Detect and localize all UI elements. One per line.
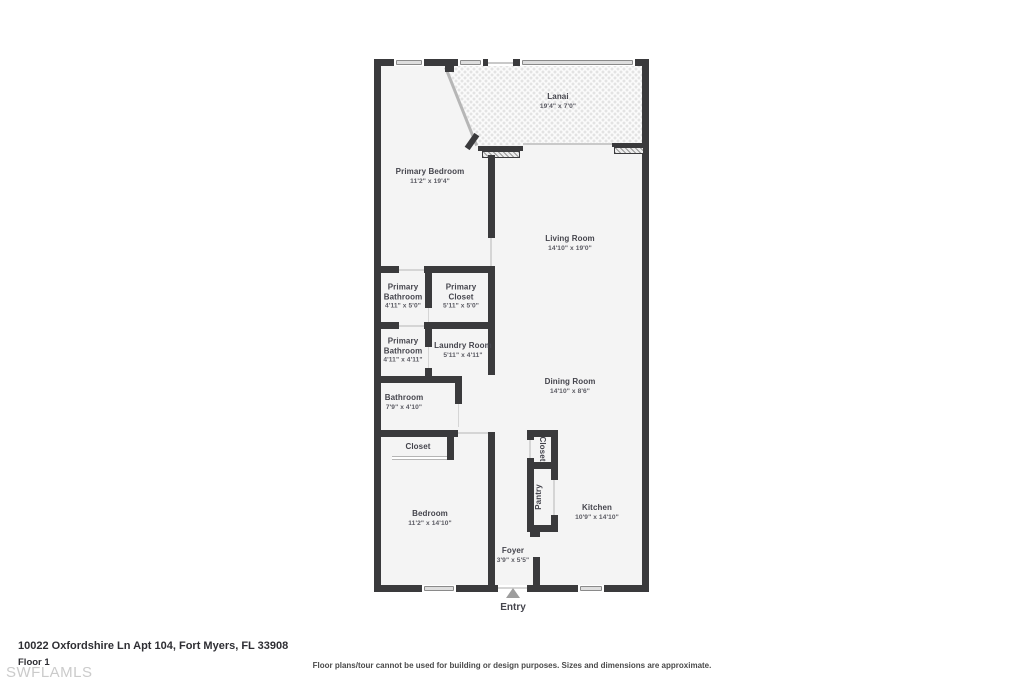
wall-primary-bath-top-2 [424,266,495,273]
disclaimer-text: Floor plans/tour cannot be used for buil… [0,661,1024,670]
room-dims: 14'10" x 19'0" [545,245,595,252]
window-lanai [520,59,635,66]
room-name: Laundry Room [434,341,492,351]
wall-hall-closet-right [447,430,454,460]
wall-bottom-1 [374,585,422,592]
room-name: Primary Closet [435,282,487,301]
room-name: Bedroom [408,509,451,519]
wall-bottom-3 [527,585,578,592]
room-label-living-room: Living Room 14'10" x 19'0" [545,234,595,252]
room-name: Primary Bathroom [377,336,429,355]
room-label-primary-bedroom: Primary Bedroom 11'2" x 19'4" [396,167,465,185]
wall-bath-laundry-divider-2 [425,368,432,376]
wall-hall-closet-top [374,430,458,437]
room-label-primary-bathroom-2: Primary Bathroom 4'11" x 4'11" [377,336,429,363]
wall-closet-pantry-divider [527,462,558,469]
room-name: Closet [405,442,430,452]
wall-bathroom-top [374,376,462,383]
wall-closet-left-1 [527,430,534,440]
room-label-foyer: Foyer 3'9" x 5'5" [497,546,530,564]
room-label-primary-bathroom-1: Primary Bathroom 4'11" x 5'0" [377,282,429,309]
room-label-hall-closet: Closet [405,442,430,452]
floor-plan: Lanai 19'4" x 7'0" Primary Bedroom 11'2"… [374,59,649,592]
wall-bathroom-right [455,383,462,404]
window-bottom-right [578,585,604,592]
top-screen-segment [488,62,513,64]
room-dims: 7'9" x 4'10" [385,404,424,411]
address-text: 10022 Oxfordshire Ln Apt 104, Fort Myers… [18,640,288,652]
wall-closet-right [551,430,558,480]
room-name: Bathroom [385,393,424,403]
window-bottom-left [422,585,456,592]
wall-row2-top-2 [424,322,495,329]
wall-bottom-2 [456,585,498,592]
page: { "page": { "address": "10022 Oxfordshir… [0,0,1024,682]
primary-bath-door-opening [399,269,424,271]
room-name: Closet [537,436,547,461]
room-dims: 14'10" x 8'6" [545,388,596,395]
room-name: Primary Bedroom [396,167,465,177]
entry-label: Entry [483,602,543,613]
room-name: Lanai [540,92,576,102]
room-dims: 5'11" x 5'0" [435,303,487,310]
wall-bedroom-foyer [488,432,495,585]
hall-closet-bifold-door [392,456,447,460]
room-label-kitchen: Kitchen 10'9" x 14'10" [575,503,619,521]
lanai-screen-edge [523,143,612,145]
room-label-bathroom: Bathroom 7'9" x 4'10" [385,393,424,411]
primary-bath2-door-opening [399,325,424,327]
room-label-laundry-room: Laundry Room 5'11" x 4'11" [434,341,492,359]
room-dims: 10'9" x 14'10" [575,514,619,521]
room-label-lanai: Lanai 19'4" x 7'0" [540,92,576,110]
room-name: Kitchen [575,503,619,513]
room-name: Dining Room [545,377,596,387]
pantry-right-opening [553,480,555,515]
room-dims: 19'4" x 7'0" [540,103,576,110]
room-name: Primary Bathroom [377,282,429,301]
room-name: Living Room [545,234,595,244]
window-top-mid [458,59,483,66]
bedroom-door-opening [458,432,488,434]
room-label-pantry: Pantry [534,484,544,510]
wall-bottom-4 [604,585,649,592]
room-name: Pantry [534,484,544,510]
wall-top-2 [424,59,458,66]
wall-top-4 [635,59,649,66]
room-label-bedroom: Bedroom 11'2" x 14'10" [408,509,451,527]
closet-door-opening [529,440,531,458]
entry-arrow-icon [506,588,520,598]
wall-row2-top-1 [374,322,399,329]
room-dims: 3'9" x 5'5" [497,557,530,564]
room-dims: 4'11" x 5'0" [377,303,429,310]
wall-bedroom-living-1 [488,155,495,238]
primary-closet-door-opening [428,308,430,322]
primary-bedroom-door-opening [490,238,492,266]
bathroom-door-opening [458,404,460,427]
room-dims: 11'2" x 14'10" [408,520,451,527]
window-top-left [394,59,424,66]
wall-pantry-stub [530,532,540,537]
wall-right [642,59,649,592]
wall-foyer-right [533,557,540,585]
sliding-door-right [614,147,644,154]
room-label-primary-closet: Primary Closet 5'11" x 5'0" [435,282,487,309]
wall-pantry-bottom [527,525,558,532]
room-dims: 5'11" x 4'11" [434,352,492,359]
wall-top-post [513,59,520,66]
wall-top-1 [374,59,394,66]
room-name: Foyer [497,546,530,556]
wall-primary-bath-top-1 [374,266,399,273]
room-dims: 4'11" x 4'11" [377,357,429,364]
room-label-dining-room: Dining Room 14'10" x 8'6" [545,377,596,395]
room-label-closet: Closet [537,436,547,461]
room-dims: 11'2" x 19'4" [396,178,465,185]
